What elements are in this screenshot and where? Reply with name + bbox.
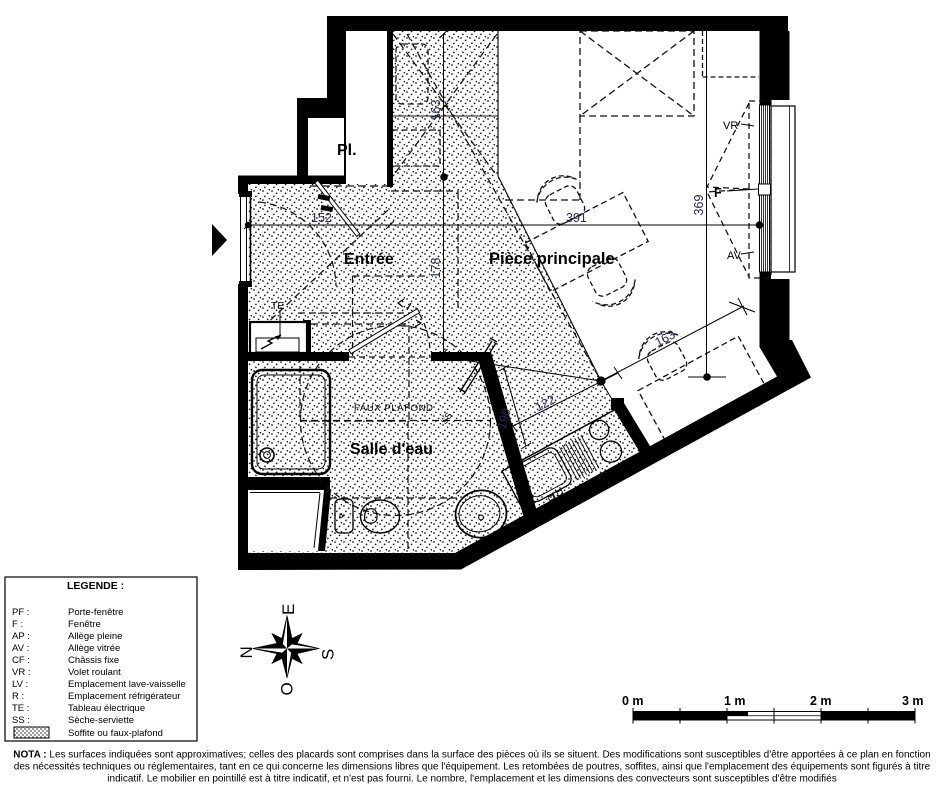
svg-text:Tableau électrique: Tableau électrique bbox=[68, 703, 145, 714]
svg-text:CF :: CF : bbox=[12, 655, 30, 666]
svg-text:Allège pleine: Allège pleine bbox=[68, 631, 122, 642]
svg-text:VR :: VR : bbox=[12, 667, 30, 678]
svg-text:SS :: SS : bbox=[12, 715, 30, 726]
svg-text:AV: AV bbox=[727, 250, 742, 262]
svg-text:R :: R : bbox=[12, 691, 24, 702]
svg-text:PF :: PF : bbox=[12, 607, 29, 618]
svg-text:2 m: 2 m bbox=[810, 694, 832, 708]
svg-text:Entrée: Entrée bbox=[344, 251, 394, 268]
svg-text:152: 152 bbox=[311, 211, 332, 225]
svg-text:F :: F : bbox=[12, 619, 23, 630]
svg-text:369: 369 bbox=[692, 195, 706, 216]
svg-text:F: F bbox=[714, 186, 722, 200]
svg-text:FAUX PLAFOND: FAUX PLAFOND bbox=[354, 403, 434, 414]
svg-text:S: S bbox=[319, 649, 338, 660]
svg-text:Pièce principale: Pièce principale bbox=[489, 250, 615, 268]
svg-text:indicatif. Le mobilier en poin: indicatif. Le mobilier en pointillé est … bbox=[107, 774, 836, 785]
svg-text:N: N bbox=[237, 646, 256, 658]
svg-text:1 m: 1 m bbox=[724, 694, 746, 708]
svg-text:O: O bbox=[278, 682, 297, 695]
svg-text:163: 163 bbox=[429, 100, 443, 121]
svg-text:Emplacement lave-vaisselle: Emplacement lave-vaisselle bbox=[68, 679, 186, 690]
svg-text:Emplacement réfrigérateur: Emplacement réfrigérateur bbox=[68, 691, 180, 702]
svg-text:Pl.: Pl. bbox=[337, 142, 357, 159]
svg-text:0 m: 0 m bbox=[622, 694, 644, 708]
svg-text:Fenêtre: Fenêtre bbox=[68, 619, 101, 630]
svg-text:LEGENDE :: LEGENDE : bbox=[67, 580, 124, 592]
svg-text:3 m: 3 m bbox=[902, 694, 924, 708]
svg-text:AV :: AV : bbox=[12, 643, 29, 654]
svg-text:des nécessités techniques ou r: des nécessités techniques ou réglementai… bbox=[14, 762, 931, 773]
svg-text:LV :: LV : bbox=[12, 679, 28, 690]
svg-text:Porte-fenêtre: Porte-fenêtre bbox=[68, 607, 123, 618]
svg-text:Volet roulant: Volet roulant bbox=[68, 667, 121, 678]
svg-text:TE: TE bbox=[271, 300, 284, 312]
svg-text:AP :: AP : bbox=[12, 631, 30, 642]
svg-text:Soffite ou faux-plafond: Soffite ou faux-plafond bbox=[68, 728, 163, 739]
svg-text:NOTA : Les surfaces indiquées: NOTA : Les surfaces indiquées sont appro… bbox=[13, 750, 930, 761]
svg-text:Allège vitrée: Allège vitrée bbox=[68, 643, 120, 654]
svg-text:Sèche-serviette: Sèche-serviette bbox=[68, 715, 134, 726]
svg-text:E: E bbox=[279, 604, 298, 615]
svg-text:Salle d'eau: Salle d'eau bbox=[350, 441, 433, 458]
svg-text:TE :: TE : bbox=[12, 703, 29, 714]
svg-text:391: 391 bbox=[566, 211, 587, 225]
svg-text:178: 178 bbox=[429, 258, 443, 279]
svg-text:Châssis fixe: Châssis fixe bbox=[68, 655, 119, 666]
svg-text:VR: VR bbox=[723, 120, 738, 132]
